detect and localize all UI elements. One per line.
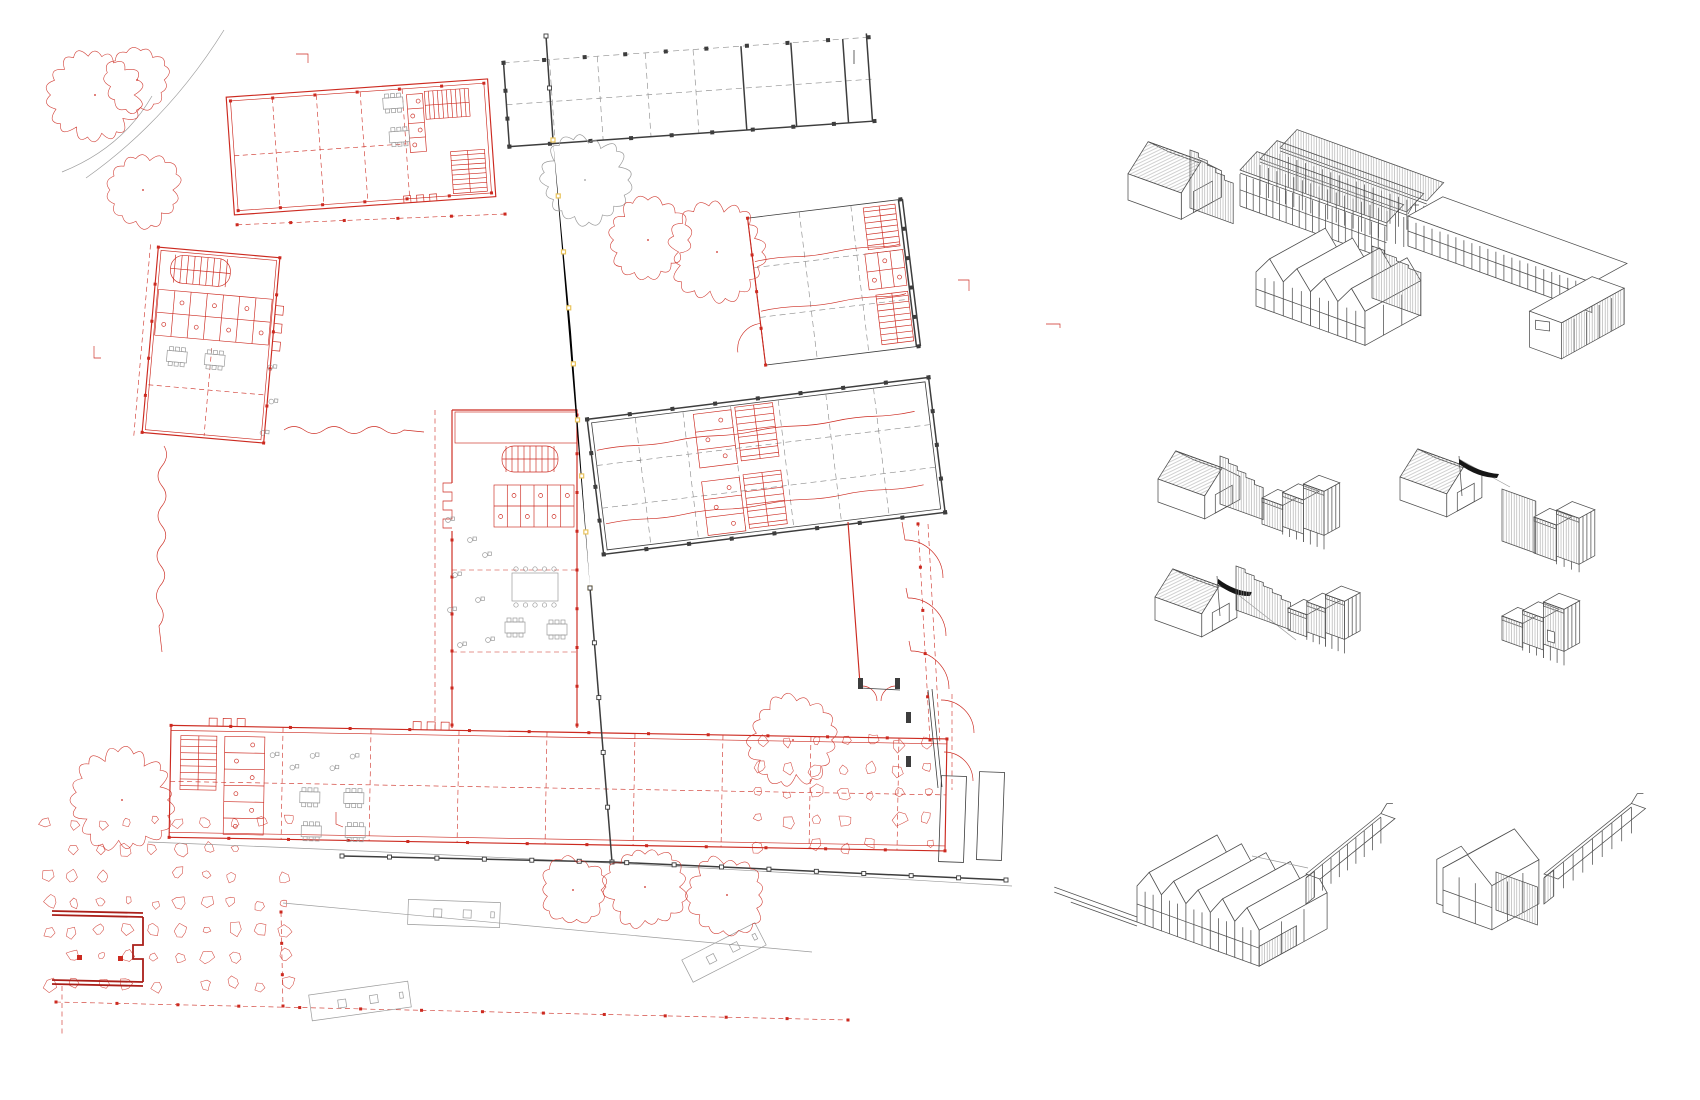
column-node: [597, 518, 601, 522]
paving-stone: [284, 815, 293, 824]
boundary-post: [592, 641, 596, 645]
paving-stone: [895, 788, 904, 797]
tree-center: [121, 799, 123, 801]
column-node: [898, 197, 902, 201]
column-node: [705, 845, 708, 848]
annotation-mark: [336, 812, 343, 827]
paving-stone: [123, 818, 130, 827]
axon-combined-massing: [1128, 130, 1627, 359]
column-node: [298, 1006, 301, 1009]
column-node: [670, 407, 674, 411]
boundary-post: [556, 194, 560, 198]
chair: [302, 803, 306, 807]
loose-chair: [446, 518, 451, 523]
chair: [523, 603, 527, 607]
column-node: [272, 330, 275, 333]
column-node: [468, 729, 471, 732]
chair: [308, 788, 312, 792]
table: [389, 131, 410, 143]
column-node: [924, 652, 927, 655]
hatched-fence: [1236, 566, 1291, 630]
boundary-post: [340, 854, 344, 858]
column-node: [490, 191, 493, 194]
paving-stone: [66, 869, 77, 882]
door-arc: [735, 323, 764, 352]
tree: [70, 746, 175, 850]
chair: [219, 351, 223, 355]
chair: [303, 822, 307, 826]
column-node: [909, 285, 913, 289]
paving-stone: [278, 925, 292, 938]
column-node: [943, 510, 947, 514]
annotation-mark: [296, 54, 308, 63]
column-node: [236, 223, 239, 226]
fixture: [706, 438, 710, 442]
column-node: [229, 725, 232, 728]
column-node: [713, 401, 717, 405]
column-node: [886, 736, 889, 739]
corridor-east: [848, 522, 974, 790]
column-node: [450, 215, 453, 218]
paving-stone: [174, 843, 188, 857]
fixture: [194, 325, 198, 329]
column-node: [363, 200, 366, 203]
table: [300, 792, 320, 803]
paving-stone: [44, 894, 57, 908]
column-node: [929, 739, 932, 742]
column-node: [593, 485, 597, 489]
colonnade-hatch: [1544, 870, 1554, 904]
boundary-post: [571, 362, 575, 366]
chair: [384, 94, 388, 98]
loose-chair: [273, 365, 277, 369]
chair: [353, 823, 357, 827]
site-path: [148, 842, 1012, 886]
column-node: [664, 1014, 667, 1017]
column-node: [503, 89, 507, 93]
wc-core: [702, 477, 746, 535]
column-node: [841, 386, 845, 390]
column-node: [287, 838, 290, 841]
paving-stone: [255, 902, 265, 911]
column-node: [576, 607, 579, 610]
column-node: [623, 52, 627, 56]
paving-stone: [227, 872, 236, 883]
chair: [533, 567, 537, 571]
fixture: [212, 304, 216, 308]
tree: [540, 135, 632, 227]
paving-stone: [230, 952, 242, 963]
paving-stone: [172, 819, 183, 829]
chair: [391, 108, 395, 112]
chair: [552, 567, 556, 571]
loose-chair: [290, 765, 295, 770]
fixture: [872, 278, 876, 282]
building-northeast: [722, 197, 921, 370]
entry-crenel: [443, 483, 452, 528]
chair: [514, 567, 518, 571]
paving-stone: [892, 766, 903, 778]
paving-stone: [203, 927, 211, 933]
column-node: [526, 842, 529, 845]
column-node: [884, 380, 888, 384]
loose-chair: [350, 754, 355, 759]
tree-center: [572, 889, 574, 891]
column-node: [832, 122, 836, 126]
column-node: [157, 245, 160, 248]
column-node: [482, 82, 485, 85]
column-node: [280, 911, 283, 914]
fixture: [180, 301, 184, 305]
column-node: [664, 49, 668, 53]
column-node: [926, 375, 930, 379]
column-node: [176, 1003, 179, 1006]
paving-stone: [226, 897, 235, 907]
paving-stone: [205, 842, 215, 853]
paving-stone: [200, 951, 215, 963]
boundary-post: [548, 86, 552, 90]
paving-stone: [97, 870, 107, 882]
axon-study-house-flag-fence-blocks: [1155, 566, 1360, 653]
loose-chair: [276, 752, 279, 755]
chair: [397, 108, 401, 112]
paving-stone: [153, 902, 160, 910]
loose-chair: [310, 753, 315, 758]
paving-stone: [148, 844, 157, 855]
squiggle-link: [284, 427, 424, 434]
column-node: [280, 942, 283, 945]
column-node: [398, 88, 401, 91]
boundary-post: [862, 872, 866, 876]
column-node: [406, 840, 409, 843]
loose-chair: [269, 399, 274, 404]
column-node: [405, 197, 408, 200]
loose-chair: [483, 553, 488, 558]
column-node: [528, 730, 531, 733]
paving-stone: [921, 812, 930, 824]
chair: [391, 128, 395, 132]
column-node: [629, 136, 633, 140]
loose-chair: [274, 399, 278, 403]
fixture: [251, 743, 255, 747]
boundary-post: [588, 586, 592, 590]
boundary-post: [576, 418, 580, 422]
chair: [392, 142, 396, 146]
annotation-mark: [958, 280, 969, 291]
posts-and-nodes: [340, 34, 1008, 882]
paving-stone: [201, 980, 211, 990]
column-node: [786, 1017, 789, 1020]
paving-stone: [280, 872, 290, 883]
axon-study-house-wire-blocks: [1400, 449, 1595, 572]
loose-chair: [453, 573, 458, 578]
fixture: [552, 515, 556, 519]
fixture: [539, 494, 543, 498]
chair: [561, 635, 565, 639]
fixture: [259, 331, 263, 335]
meeting-table: [512, 573, 558, 601]
column-node: [503, 212, 506, 215]
column-node: [359, 1007, 362, 1010]
fixture: [723, 454, 727, 458]
paving-stone: [927, 840, 933, 848]
column-node: [275, 293, 278, 296]
column-node: [670, 133, 674, 137]
paving-stone: [813, 737, 820, 745]
boundary-post: [814, 869, 818, 873]
loose-chair: [468, 538, 473, 543]
planter: [939, 776, 967, 863]
block-front: [1557, 510, 1580, 564]
column-node: [278, 256, 281, 259]
paving-stone: [152, 816, 159, 824]
chair: [523, 567, 527, 571]
chair: [352, 789, 356, 793]
tree-center: [647, 239, 649, 241]
column-node: [798, 391, 802, 395]
column-node: [884, 848, 887, 851]
column-node: [772, 531, 776, 535]
block-front: [1543, 602, 1564, 651]
boundary-post: [482, 857, 486, 861]
column-node: [343, 219, 346, 222]
building-south-red-wing: [168, 717, 949, 852]
paving-stone: [201, 897, 214, 908]
axon-study-blocks-only: [1502, 593, 1580, 665]
paving-stone: [922, 764, 930, 772]
chair: [174, 362, 178, 366]
column-node: [448, 194, 451, 197]
chair: [206, 365, 210, 369]
column-node: [756, 396, 760, 400]
paving-stone: [255, 983, 265, 992]
tree: [746, 693, 837, 786]
table: [345, 826, 365, 837]
paving-fields: [39, 735, 934, 994]
fixture: [714, 505, 718, 509]
column-node: [759, 327, 762, 330]
fixture: [250, 776, 254, 780]
chair: [352, 804, 356, 808]
column-node: [919, 566, 922, 569]
column-node: [321, 203, 324, 206]
chair: [513, 633, 517, 637]
table: [301, 826, 321, 837]
chair: [555, 635, 559, 639]
fixture: [245, 306, 249, 310]
boundary-post: [561, 250, 565, 254]
column-node: [926, 695, 929, 698]
boundary-post: [601, 750, 605, 754]
boundary-post: [584, 530, 588, 534]
annotation-mark: [1046, 324, 1060, 328]
column-node: [55, 1001, 58, 1004]
colonnade-roof: [1306, 814, 1395, 880]
loose-chair: [295, 765, 298, 768]
column-node: [466, 841, 469, 844]
drawing-sheet: [0, 0, 1700, 1100]
chair: [552, 603, 556, 607]
paving-stone: [808, 765, 820, 777]
wc-core: [693, 410, 737, 468]
chair: [542, 603, 546, 607]
column-node: [147, 357, 150, 360]
trees: [46, 47, 837, 936]
boundary-post: [720, 865, 724, 869]
paving-stone: [149, 953, 158, 961]
chair: [507, 618, 511, 622]
chair: [561, 620, 565, 624]
table: [383, 97, 404, 109]
table: [166, 350, 187, 363]
paving-stone: [120, 979, 132, 990]
column-node: [227, 837, 230, 840]
paving-stone: [66, 927, 76, 939]
paving-stone: [176, 953, 186, 963]
column-node: [750, 253, 753, 256]
chair: [181, 348, 185, 352]
column-node: [872, 119, 876, 123]
column-node: [150, 320, 153, 323]
chair: [397, 127, 401, 131]
paving-stone: [784, 738, 791, 748]
chair: [507, 633, 511, 637]
column-node: [289, 726, 292, 729]
chair: [533, 603, 537, 607]
hatched-fence: [1190, 150, 1233, 224]
column-node: [791, 125, 795, 129]
chair: [308, 803, 312, 807]
site-plan: [52, 30, 1012, 1034]
chair: [358, 804, 362, 808]
column-node: [785, 41, 789, 45]
paving-stone: [126, 897, 131, 904]
existing-hall-center: [585, 375, 947, 556]
block-front: [1534, 517, 1557, 561]
chair: [519, 633, 523, 637]
planter: [976, 772, 1004, 861]
column-node: [501, 61, 505, 65]
paving-stone: [892, 812, 908, 826]
hatched-wall: [1502, 489, 1536, 553]
column-node: [505, 117, 509, 121]
chair: [314, 788, 318, 792]
fixture: [234, 759, 238, 763]
column-node: [440, 85, 443, 88]
column-node: [601, 552, 605, 556]
chair: [555, 620, 559, 624]
fixture: [411, 114, 415, 118]
paving-stone: [96, 898, 105, 906]
column-node: [542, 1012, 545, 1015]
loose-chair: [491, 637, 494, 640]
fixture: [499, 515, 503, 519]
column-node: [576, 452, 579, 455]
paving-stone: [867, 792, 874, 801]
column-node: [265, 404, 268, 407]
paving-stone: [232, 818, 239, 827]
paving-stone: [839, 765, 848, 775]
column-node: [115, 1002, 118, 1005]
column-node: [935, 443, 939, 447]
boundary-post: [672, 863, 676, 867]
paving-stone: [148, 923, 159, 935]
paving-stone: [783, 763, 793, 776]
paving-stone: [93, 924, 104, 934]
column-node: [603, 1013, 606, 1016]
paving-stone: [44, 928, 55, 938]
column-node: [576, 646, 579, 649]
column-node: [271, 96, 274, 99]
chair: [218, 366, 222, 370]
table: [204, 354, 225, 367]
column-node: [589, 451, 593, 455]
column-node: [847, 1019, 850, 1022]
tree: [543, 856, 607, 923]
boundary-post: [387, 855, 391, 859]
fixture: [731, 521, 735, 525]
loose-chair: [265, 430, 269, 434]
chair: [549, 635, 553, 639]
axon-study-house-fence-blocks: [1158, 451, 1340, 550]
tree-center: [142, 189, 144, 191]
paving-stone: [841, 843, 849, 854]
column-node: [647, 732, 650, 735]
column-node: [396, 217, 399, 220]
paving-stone: [172, 867, 183, 878]
column-node: [585, 843, 588, 846]
chair: [542, 567, 546, 571]
loose-chair: [476, 598, 481, 603]
boundary-line: [590, 588, 612, 862]
chair: [396, 93, 400, 97]
architectural-drawing: [0, 0, 1700, 1100]
column-node: [451, 613, 454, 616]
column-node: [687, 542, 691, 546]
paving-stone: [753, 814, 761, 821]
block-front: [1307, 602, 1326, 639]
annotation-mark: [94, 346, 101, 358]
paving-stone: [121, 924, 134, 936]
axon-row-gables-colonnade: [1054, 804, 1395, 967]
tree-center: [644, 886, 646, 888]
paving-stone: [70, 898, 78, 909]
building-west-red: [134, 244, 291, 448]
chair: [180, 362, 184, 366]
column-node: [930, 409, 934, 413]
loose-chair: [458, 643, 463, 648]
boundary-post: [551, 138, 555, 142]
fixture: [525, 515, 529, 519]
tree-center: [584, 179, 586, 181]
fixture: [719, 418, 723, 422]
loose-chair: [270, 753, 275, 758]
chair: [315, 822, 319, 826]
paving-stone: [39, 818, 51, 827]
paving-stone: [202, 871, 211, 879]
paving-stone: [68, 846, 78, 855]
loose-chair: [481, 597, 484, 600]
loose-chair: [356, 754, 359, 757]
boundary-post: [530, 858, 534, 862]
fixture: [727, 485, 731, 489]
paving-stone: [151, 982, 162, 993]
column-node: [917, 523, 920, 526]
fixture: [565, 494, 569, 498]
column-node: [576, 491, 579, 494]
door-arc: [905, 540, 949, 689]
paving-stone: [99, 821, 108, 830]
